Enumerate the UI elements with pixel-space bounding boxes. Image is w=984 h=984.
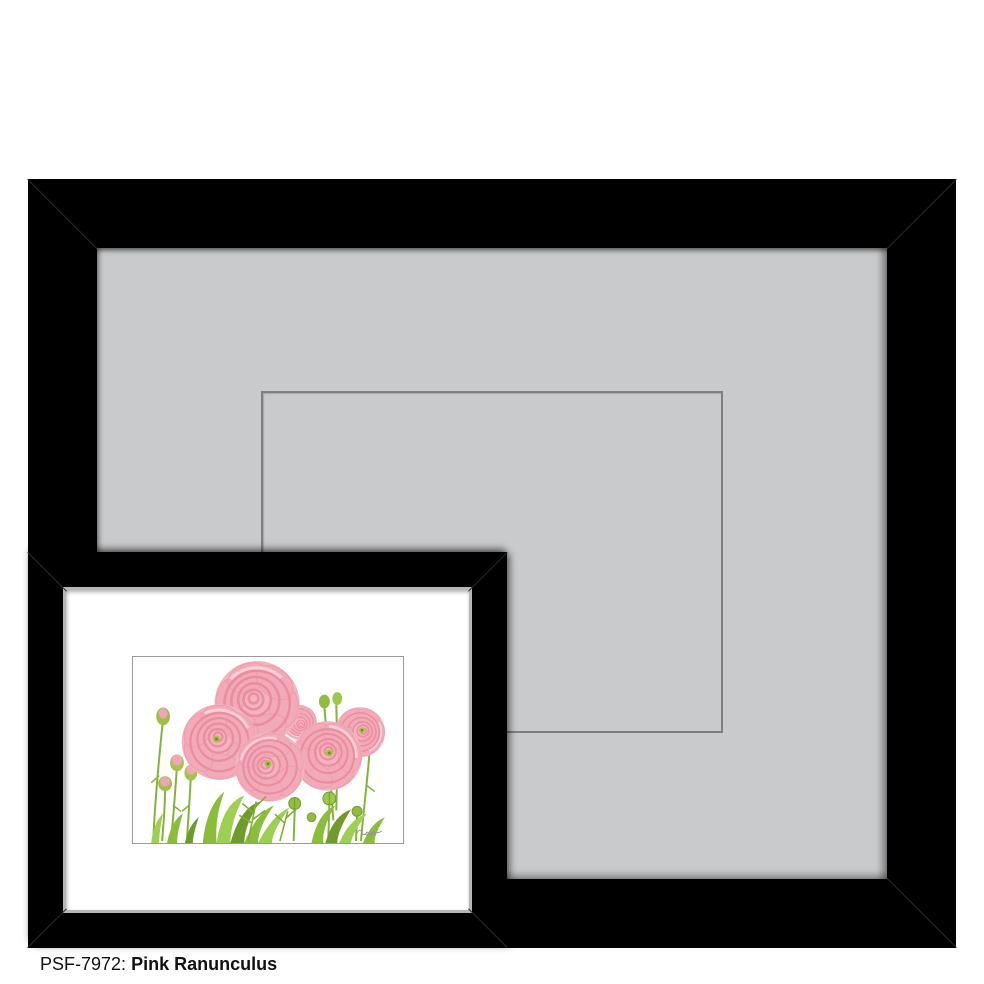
- flower-illustration: [133, 657, 403, 843]
- small-frame-white-mat: [66, 590, 469, 910]
- large-frame-miter-joint: [886, 877, 957, 948]
- artwork-print: [132, 656, 404, 844]
- ranunculus-blooms: [166, 657, 396, 814]
- product-code: PSF-7972:: [40, 954, 126, 974]
- small-frame-miter-joint: [27, 908, 67, 948]
- large-frame-miter-joint: [27, 179, 98, 250]
- large-frame-miter-joint: [886, 179, 957, 250]
- product-mockup-image: PSF-7972: Pink Ranunculus: [0, 0, 984, 984]
- caption: PSF-7972: Pink Ranunculus: [40, 954, 277, 975]
- small-frame-miter-joint: [468, 552, 508, 592]
- small-frame-miter-joint: [468, 908, 508, 948]
- small-frame: [28, 552, 507, 948]
- small-frame-miter-joint: [27, 552, 67, 592]
- artwork-title: Pink Ranunculus: [131, 954, 277, 974]
